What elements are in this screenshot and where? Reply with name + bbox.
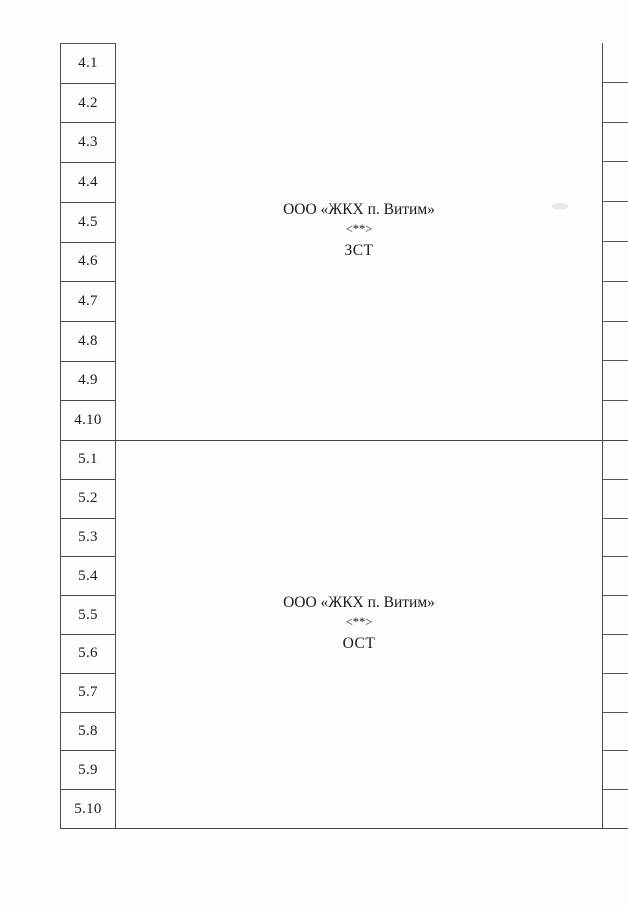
row-number-cell: 5.4	[61, 557, 115, 596]
row-number-column-4: 4.1 4.2 4.3 4.4 4.5 4.6 4.7 4.8 4.9 4.10	[60, 43, 116, 440]
organization-merged-cell-4: ООО «ЖКХ п. Витим» <**> ЗСТ	[116, 43, 602, 440]
row-number-cell: 5.2	[61, 480, 115, 519]
truncated-cell	[603, 713, 628, 752]
organization-name: ООО «ЖКХ п. Витим»	[283, 593, 435, 612]
row-number-cell: 4.4	[61, 163, 115, 203]
truncated-cell	[603, 322, 628, 362]
truncated-cell	[603, 83, 628, 123]
row-number-cell: 4.3	[61, 123, 115, 163]
row-number-cell: 5.6	[61, 635, 115, 674]
organization-name: ООО «ЖКХ п. Витим»	[283, 200, 435, 219]
truncated-right-column-5	[602, 441, 628, 828]
row-number-cell: 4.5	[61, 203, 115, 243]
truncated-cell	[603, 596, 628, 635]
organization-text-block: ООО «ЖКХ п. Витим» <**> ЗСТ	[283, 200, 435, 260]
truncated-cell	[603, 441, 628, 480]
truncated-cell	[603, 674, 628, 713]
organization-merged-cell-5: ООО «ЖКХ п. Витим» <**> ОСТ	[116, 441, 602, 828]
tariff-code: ЗСТ	[283, 241, 435, 260]
row-number-cell: 5.10	[61, 790, 115, 828]
scanned-document-page: 4.1 4.2 4.3 4.4 4.5 4.6 4.7 4.8 4.9 4.10…	[0, 0, 628, 905]
scan-artifact	[552, 203, 568, 210]
truncated-cell	[603, 361, 628, 401]
tariff-code: ОСТ	[283, 634, 435, 653]
row-number-cell: 5.3	[61, 519, 115, 558]
truncated-cell	[603, 43, 628, 83]
truncated-cell	[603, 242, 628, 282]
truncated-cell	[603, 401, 628, 440]
table-section-4: 4.1 4.2 4.3 4.4 4.5 4.6 4.7 4.8 4.9 4.10…	[60, 43, 628, 441]
tariff-table: 4.1 4.2 4.3 4.4 4.5 4.6 4.7 4.8 4.9 4.10…	[60, 43, 628, 829]
truncated-cell	[603, 202, 628, 242]
truncated-cell	[603, 790, 628, 828]
truncated-cell	[603, 480, 628, 519]
truncated-cell	[603, 162, 628, 202]
row-number-cell: 5.7	[61, 674, 115, 713]
truncated-cell	[603, 282, 628, 322]
row-number-cell: 4.10	[61, 401, 115, 440]
row-number-cell: 4.9	[61, 362, 115, 402]
truncated-cell	[603, 635, 628, 674]
row-number-cell: 5.9	[61, 751, 115, 790]
row-number-column-5: 5.1 5.2 5.3 5.4 5.5 5.6 5.7 5.8 5.9 5.10	[60, 441, 116, 828]
truncated-cell	[603, 557, 628, 596]
organization-text-block: ООО «ЖКХ п. Витим» <**> ОСТ	[283, 593, 435, 653]
table-section-5: 5.1 5.2 5.3 5.4 5.5 5.6 5.7 5.8 5.9 5.10…	[60, 441, 628, 829]
row-number-cell: 4.7	[61, 282, 115, 322]
truncated-cell	[603, 519, 628, 558]
truncated-cell	[603, 751, 628, 790]
row-number-cell: 5.1	[61, 441, 115, 480]
row-number-cell: 5.8	[61, 713, 115, 752]
row-number-cell: 5.5	[61, 596, 115, 635]
footnote-marker: <**>	[283, 222, 435, 238]
row-number-cell: 4.1	[61, 44, 115, 84]
row-number-cell: 4.2	[61, 84, 115, 124]
footnote-marker: <**>	[283, 615, 435, 631]
row-number-cell: 4.6	[61, 243, 115, 283]
truncated-cell	[603, 123, 628, 163]
truncated-right-column-4	[602, 43, 628, 440]
row-number-cell: 4.8	[61, 322, 115, 362]
